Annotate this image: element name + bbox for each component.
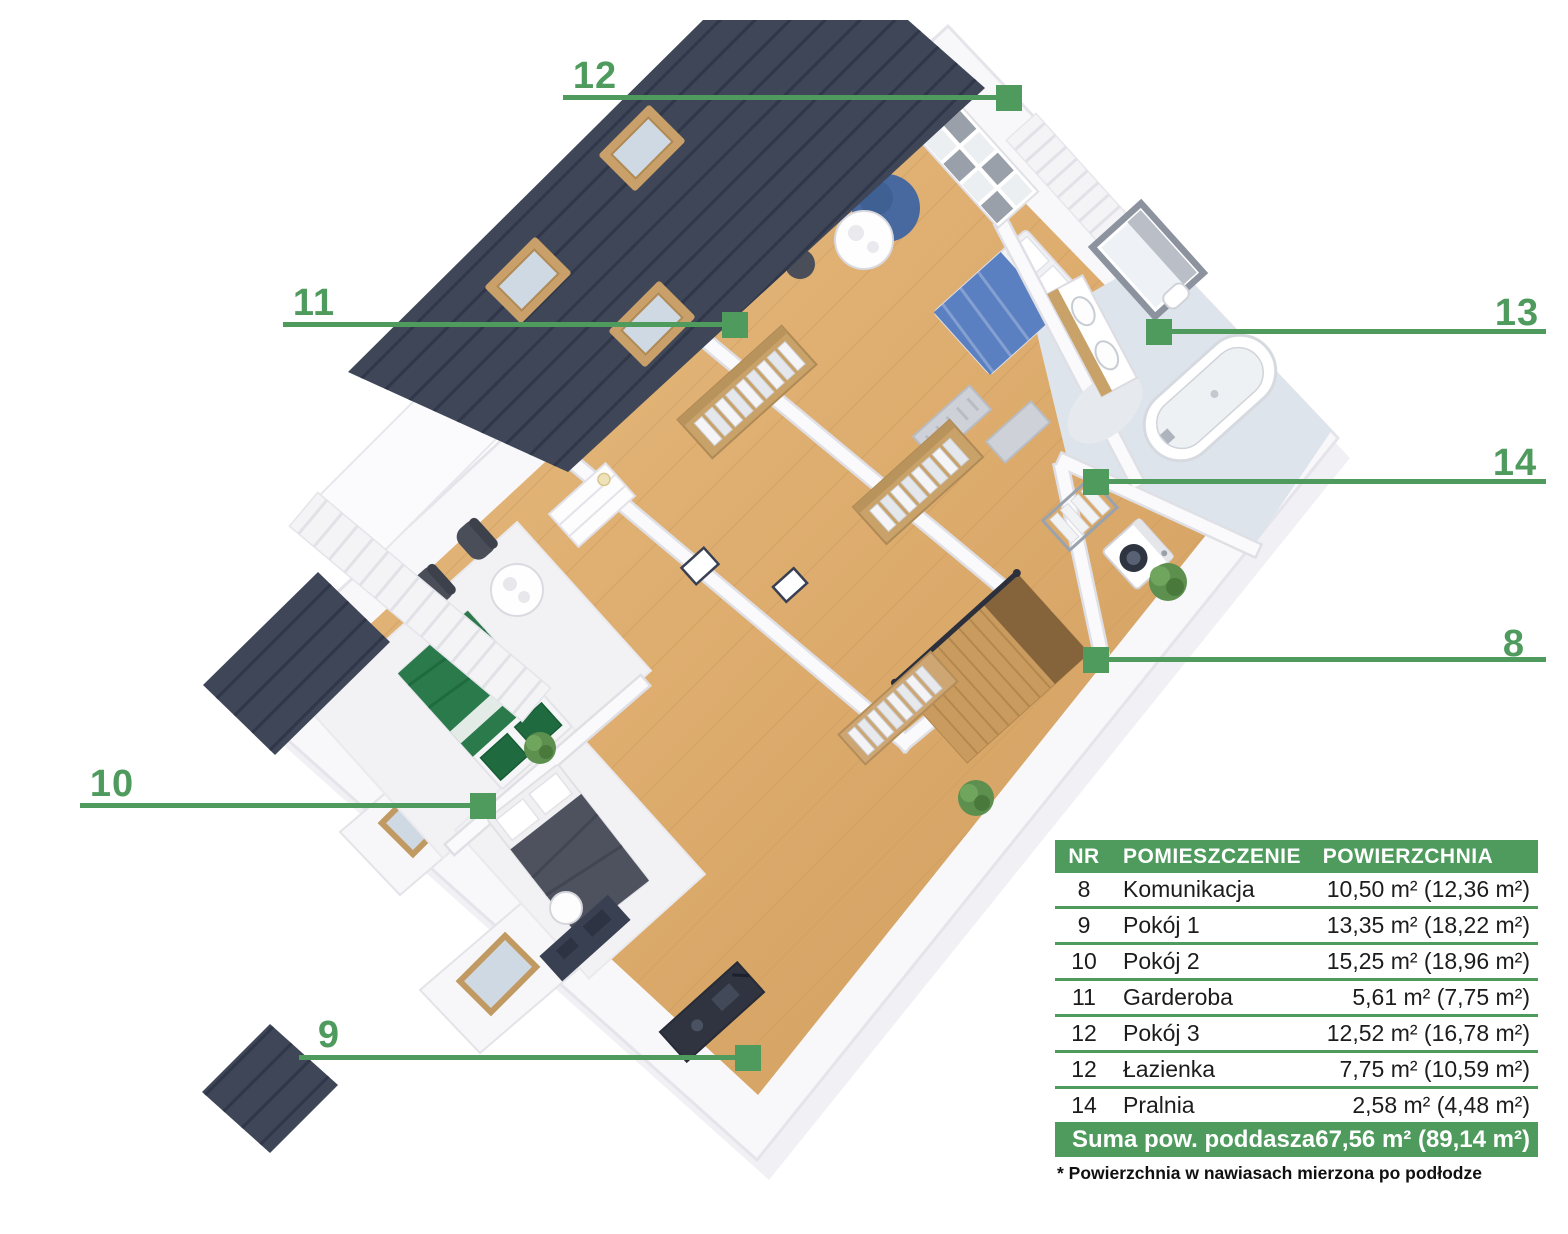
leader-endpoint-9 [735,1045,761,1071]
summary-area: 67,56 m² (89,14 m²) [1315,1126,1538,1154]
row-area: 10,50 m² (12,36 m²) [1278,876,1538,903]
summary-label: Suma pow. poddasza [1055,1126,1315,1154]
row-nr: 9 [1055,912,1113,939]
leader-endpoint-12 [996,85,1022,111]
plant-stairs [958,780,994,816]
row-nr: 11 [1055,984,1113,1011]
room-label-11: 11 [284,284,344,322]
row-nr: 12 [1055,1020,1113,1047]
leader-line-12 [563,95,1009,100]
leader-endpoint-11 [722,312,748,338]
legend-header: NR POMIESZCZENIE POWIERZCHNIA [1055,840,1538,873]
table-row: 12 Pokój 3 12,52 m² (16,78 m²) [1055,1014,1538,1050]
leader-line-10 [80,803,483,808]
legend-footnote: * Powierzchnia w nawiasach mierzona po p… [1055,1163,1538,1184]
legend-summary: Suma pow. poddasza 67,56 m² (89,14 m²) [1055,1122,1538,1157]
table-row: 8 Komunikacja 10,50 m² (12,36 m²) [1055,873,1538,906]
table-row: 14 Pralnia 2,58 m² (4,48 m²) [1055,1086,1538,1122]
table-row: 12 Łazienka 7,75 m² (10,59 m²) [1055,1050,1538,1086]
table-row: 10 Pokój 2 15,25 m² (18,96 m²) [1055,942,1538,978]
row-area: 5,61 m² (7,75 m²) [1278,984,1538,1011]
row-room: Pokój 3 [1113,1020,1278,1047]
leader-endpoint-14 [1083,469,1109,495]
desk-chair-room9 [550,892,582,924]
leader-line-8 [1096,657,1546,662]
row-nr: 12 [1055,1056,1113,1083]
row-room: Pokój 1 [1113,912,1278,939]
row-area: 7,75 m² (10,59 m²) [1278,1056,1538,1083]
side-table [491,564,543,616]
table-row: 11 Garderoba 5,61 m² (7,75 m²) [1055,978,1538,1014]
table-row: 9 Pokój 1 13,35 m² (18,22 m²) [1055,906,1538,942]
row-area: 2,58 m² (4,48 m²) [1278,1092,1538,1119]
room-label-9: 9 [299,1016,359,1054]
room-label-10: 10 [82,765,142,803]
row-area: 12,52 m² (16,78 m²) [1278,1020,1538,1047]
row-room: Łazienka [1113,1056,1278,1083]
row-room: Garderoba [1113,984,1278,1011]
row-nr: 8 [1055,876,1113,903]
coffee-table [835,211,893,269]
row-room: Pralnia [1113,1092,1278,1119]
leader-endpoint-8 [1083,647,1109,673]
row-area: 13,35 m² (18,22 m²) [1278,912,1538,939]
leader-endpoint-13 [1146,319,1172,345]
plant-room9 [524,732,556,764]
room-label-12: 12 [565,57,625,95]
plant-pralnia [1149,563,1187,601]
leader-line-14 [1096,479,1546,484]
leader-line-13 [1159,329,1546,334]
row-nr: 10 [1055,948,1113,975]
header-room: POMIESZCZENIE [1113,845,1278,869]
leader-endpoint-10 [470,793,496,819]
row-room: Pokój 2 [1113,948,1278,975]
header-nr: NR [1055,845,1113,869]
room-label-13: 13 [1487,294,1547,332]
row-nr: 14 [1055,1092,1113,1119]
leader-line-11 [283,322,735,327]
room-label-14: 14 [1485,444,1545,482]
header-area: POWIERZCHNIA [1278,845,1538,869]
leader-line-9 [299,1055,748,1060]
row-area: 15,25 m² (18,96 m²) [1278,948,1538,975]
area-legend: NR POMIESZCZENIE POWIERZCHNIA 8 Komunika… [1055,840,1538,1184]
row-room: Komunikacja [1113,876,1278,903]
